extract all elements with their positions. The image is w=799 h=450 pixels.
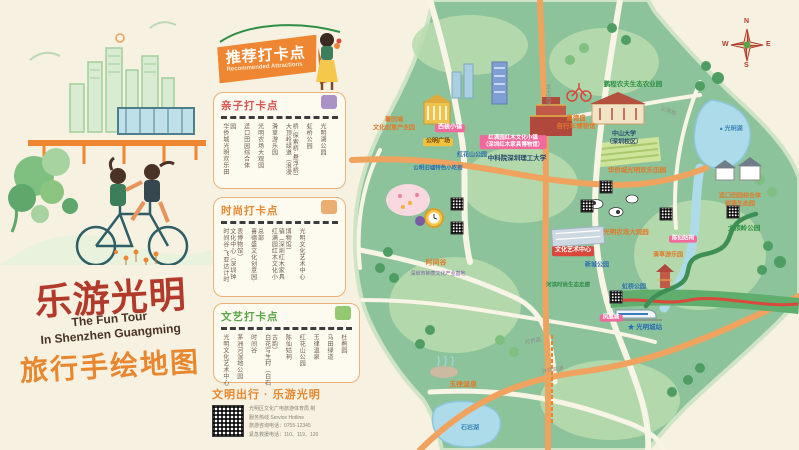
map-label: 新城公园 — [585, 262, 609, 270]
attraction-items: 时间谷·飞亚达计时文化中心（深圳钟表博物馆）喜德盛文化创意园·总部红满园红木文化… — [221, 228, 338, 284]
map-label: 玉律温泉 — [449, 382, 477, 391]
map-label: 文化艺术中心 — [552, 246, 594, 256]
cover-panel: 乐游光明 The Fun Tour In Shenzhen Guangming … — [0, 0, 212, 450]
map-label: 外环高速 — [542, 366, 565, 377]
attraction-items: 华侨城光明欢乐田园迳口田园综合体光明农场大观园滑草游乐园大顶岭绿道（浪漫桥·探索… — [221, 123, 338, 179]
map-label: 公明旧墟特色小吃街 — [413, 166, 463, 173]
map-label: 凤凰城 — [600, 315, 623, 322]
attraction-item: 时间谷 — [249, 334, 256, 354]
qr-code-icon — [660, 208, 673, 221]
divider — [221, 327, 352, 330]
map-label: 大顶岭公园 — [728, 225, 761, 233]
attraction-item: 光明文化艺术中心 — [297, 228, 304, 280]
map-label: 红花山公园 — [457, 152, 487, 160]
map-label: 喜德盛 自行车博物馆 — [557, 115, 596, 131]
map-label: 时间谷 — [426, 260, 447, 269]
map-label: ★ 光明城站 — [628, 324, 662, 332]
attraction-item: 玉律温泉 — [311, 334, 318, 360]
map-label: 虹桥公园 — [622, 284, 646, 292]
hotline-label: 服务热线 Service Hotline — [249, 414, 318, 423]
attraction-item: 迳口田园综合体 — [242, 123, 249, 169]
qr-code-icon — [600, 181, 613, 194]
attraction-item: 光明文化艺术中心 — [221, 334, 228, 386]
sneaker-icon — [335, 306, 351, 320]
attraction-item: 滑草游乐园 — [270, 123, 277, 156]
list-family-spots: 亲子打卡点 华侨城光明欢乐田园迳口田园综合体光明农场大观园滑草游乐园大顶岭绿道（… — [213, 92, 346, 189]
map-label: 鹏程农夫生态农业园 — [604, 81, 663, 89]
list-fashion-spots: 时尚打卡点 时间谷·飞亚达计时文化中心（深圳钟表博物馆）喜德盛文化创意园·总部红… — [213, 197, 346, 297]
map-label: 滑草游乐园 — [653, 252, 683, 260]
girl-illustration — [312, 30, 342, 92]
map-label: 石岩湖 — [461, 425, 479, 433]
watch-icon — [321, 200, 337, 214]
attraction-item: 白花写生村（白石古韵） — [263, 334, 277, 390]
map-label: 龙大高速 — [544, 84, 551, 106]
map-label: 陈仙姑祠 — [669, 236, 697, 243]
attraction-item: 时间谷·飞亚达计时文化中心（深圳钟表博物馆） — [221, 228, 242, 284]
map-label: 公常路 — [659, 106, 677, 119]
attraction-item: 红满园红木文化小镇（深圳红木家具博物馆） — [269, 228, 290, 284]
attraction-item: 陈仙姑祠 — [283, 334, 290, 360]
stroller-icon — [321, 95, 337, 109]
map-label: 红满园红木文化小镇 （深圳红木家具博物馆） — [480, 135, 547, 149]
hotline-emergency: 紧急救援电话：110、119、120 — [249, 431, 318, 440]
attraction-item: 马田绿道 — [325, 334, 332, 360]
attraction-items: 光明文化艺术中心茅洲河湿地公园时间谷白花写生村（白石古韵）陈仙姑祠红花山公园玉律… — [221, 334, 352, 390]
hand-drawn-tour-map-poster: { "cover": { "title_cn": "乐游光明", "title_… — [0, 0, 799, 450]
map-label: 薯田埔 文化创意产业园 — [373, 118, 415, 133]
map-label: 光侨路 — [524, 337, 541, 346]
qr-code-icon — [610, 291, 623, 304]
divider — [221, 116, 338, 119]
issuer-text: 光明区文化广电旅游体育局 制 — [249, 405, 318, 414]
qr-code-icon — [581, 200, 594, 213]
list-title: 文艺打卡点 — [221, 309, 352, 324]
attraction-item: 喜德盛文化创意园·总部 — [249, 228, 263, 284]
footer-slogan: 文明出行 · 乐游光明 — [212, 386, 347, 402]
map-label: ● 光明湖 — [719, 126, 742, 134]
map-label: 中山大学 （深圳校区） — [606, 132, 642, 147]
map-label: 西装小镇 — [435, 124, 465, 132]
map-label: 公明广场 — [423, 138, 453, 146]
qr-code-icon — [727, 206, 740, 219]
attraction-item: 光明湖公园 — [318, 123, 325, 156]
attraction-item: 红花山公园 — [297, 334, 304, 367]
map-label: 光明农场大观园 — [603, 229, 649, 237]
qr-code-icon — [451, 222, 464, 235]
cover-illustration — [0, 0, 212, 265]
recommended-banner: 推荐打卡点 Recommended Attractions — [216, 12, 344, 94]
hotline-tourism: 旅游咨询电话：0755-12345 — [249, 422, 318, 431]
attraction-item: 华侨城光明欢乐田园 — [221, 123, 235, 179]
list-art-spots: 文艺打卡点 光明文化艺术中心茅洲河湿地公园时间谷白花写生村（白石古韵）陈仙姑祠红… — [213, 303, 360, 383]
divider — [221, 221, 338, 224]
qr-code — [212, 405, 244, 437]
attraction-item: 大顶岭绿道（浪漫桥·探索桥·悬浮桥） — [283, 123, 297, 179]
footer-info: 文明出行 · 乐游光明 光明区文化广电旅游体育局 制 服务热线 Service … — [212, 386, 347, 439]
map-label: 中科院深圳理工大学 — [488, 155, 547, 163]
map-label: 迳口田园综合体 树德生态园 — [719, 194, 761, 209]
attraction-item: 茅洲河湿地公园 — [235, 334, 242, 380]
qr-code-icon — [451, 198, 464, 211]
map-label: 华侨城光明欢乐田园 — [608, 167, 667, 175]
map-label: 深圳市钟表文化产业基地 — [410, 271, 465, 277]
attraction-item: 光明农场大观园 — [256, 123, 263, 169]
attraction-item: 杜鹃园 — [339, 334, 346, 354]
attraction-item: 虹桥公园 — [304, 123, 311, 149]
map-label: 河滨时尚生态走廊 — [546, 283, 590, 290]
